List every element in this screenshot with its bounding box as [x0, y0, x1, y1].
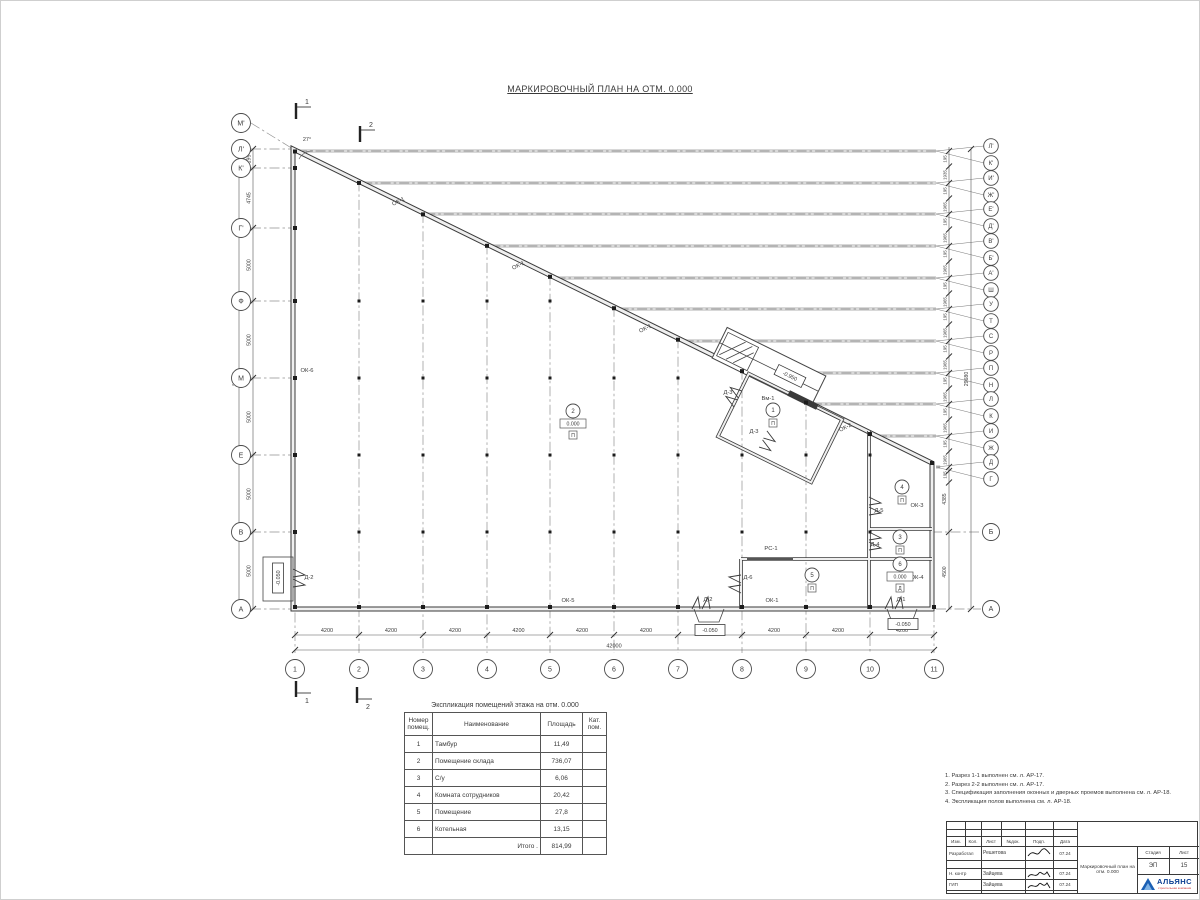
stamp-name: Решетова [981, 846, 1025, 860]
table-cell: Помещение склада [433, 753, 541, 770]
door-label: Д-3 [749, 429, 758, 435]
column [868, 605, 872, 609]
column [740, 605, 744, 609]
dimension-label: 1965 [943, 202, 948, 212]
stamp-header: Лист [981, 836, 1001, 846]
table-row: 2Помещение склада736,07 [405, 753, 607, 770]
table-cell: 27,8 [541, 804, 583, 821]
table-cell: 736,07 [541, 753, 583, 770]
axis-label: М' [237, 120, 244, 127]
stamp-role: Н. контр [947, 868, 981, 879]
table-row: 3С/у6,06 [405, 770, 607, 787]
column [612, 306, 616, 310]
stamp-name: Зайцева [981, 879, 1025, 890]
elevation-value: 0.000 [567, 422, 580, 428]
dimension-label: 42000 [606, 644, 621, 650]
axis-label: Г' [238, 225, 243, 232]
column [805, 454, 808, 457]
axis-label: Ф [238, 298, 243, 305]
column [293, 605, 297, 609]
column [421, 212, 425, 216]
axis-label: Е [239, 452, 244, 459]
axis-label: 3 [421, 666, 425, 673]
axis-label: У [989, 302, 993, 308]
col-category: Кат. пом. [583, 713, 607, 736]
axis-label: М [238, 375, 244, 382]
axis-line [251, 123, 293, 149]
dimension-label: 5000 [247, 565, 253, 577]
column [613, 531, 616, 534]
axis-label: Л' [988, 144, 993, 150]
axis-label: К [989, 414, 993, 420]
axis-label: Т [989, 319, 993, 325]
window-label: ОК-1 [638, 324, 652, 335]
table-cell: Комната сотрудников [433, 787, 541, 804]
column [930, 461, 934, 465]
column [422, 531, 425, 534]
col-number: Номер помещ. [405, 713, 433, 736]
interior-wall-core [741, 431, 932, 609]
dimension-label: 1965 [943, 297, 948, 307]
axis-label: К' [238, 165, 243, 172]
dimension-label: 4200 [385, 628, 397, 634]
column [805, 531, 808, 534]
axis-label: 4 [485, 666, 489, 673]
angle-label: 27° [303, 137, 311, 143]
table-header-row: Номер помещ. Наименование Площадь Кат. п… [405, 713, 607, 736]
floor-type: П [898, 548, 902, 554]
column [485, 605, 489, 609]
drawing-sheet: МАРКИРОВОЧНЫЙ ПЛАН НА ОТМ. 0.000 4200420… [0, 0, 1200, 900]
floor-type: П [771, 421, 775, 427]
col-name: Наименование [433, 713, 541, 736]
axis-label: Л [989, 397, 993, 403]
table-cell: 6,06 [541, 770, 583, 787]
column [677, 531, 680, 534]
stamp-doc-title: Маркировочный план на отм. 0.000 [1078, 847, 1137, 893]
dimension-label: 4200 [640, 628, 652, 634]
dimension-label: 1965 [943, 360, 948, 370]
window-label: Вм-1 [762, 396, 775, 402]
axis-label: 11 [930, 666, 937, 673]
company-logo: АЛЬЯНС строительная компания [1137, 874, 1199, 893]
column [676, 605, 680, 609]
door-label: Д-3 [723, 390, 732, 396]
column [358, 300, 361, 303]
table-cell: 814,99 [541, 838, 583, 855]
tambour-wall-core [718, 374, 842, 483]
section-number: 2 [369, 122, 373, 129]
signature [1025, 879, 1053, 890]
table-cell [583, 787, 607, 804]
note-line: 1. Разрез 1-1 выполнен см. л. АР-17. [945, 772, 1171, 781]
axis-label: 5 [548, 666, 552, 673]
dimension-label: 195 [943, 377, 948, 385]
column [486, 377, 489, 380]
section-number: 1 [305, 99, 309, 106]
dimension-label: 4200 [768, 628, 780, 634]
explication-table: Номер помещ. Наименование Площадь Кат. п… [404, 712, 607, 855]
column [485, 244, 489, 248]
floor-type: П [900, 498, 904, 504]
table-cell: Котельная [433, 821, 541, 838]
table-cell: 6 [405, 821, 433, 838]
col-area: Площадь [541, 713, 583, 736]
table-row: 5Помещение27,8 [405, 804, 607, 821]
table-row: 4Комната сотрудников20,42 [405, 787, 607, 804]
table-total-row: Итого .814,99 [405, 838, 607, 855]
axis-label: В [239, 529, 244, 536]
floor-type: П [571, 433, 575, 439]
axis-label: И' [988, 176, 993, 182]
dimension-label: 4500 [942, 566, 948, 577]
stamp-header: №док. [1001, 836, 1025, 846]
axis-label: 6 [612, 666, 616, 673]
dimension-label: 4200 [512, 628, 524, 634]
dimension-label: 5000 [247, 411, 253, 423]
column [677, 377, 680, 380]
title-block: Изм. Кол. Лист №док. Подп. Дата Разработ… [946, 821, 1198, 894]
table-cell: 3 [405, 770, 433, 787]
axis-label: Ж [988, 446, 994, 452]
sheet-value: 15 [1169, 858, 1199, 874]
column [422, 454, 425, 457]
axis-label: Ж' [988, 193, 995, 199]
column [677, 454, 680, 457]
axis-label: И [989, 429, 993, 435]
table-cell [583, 753, 607, 770]
note-line: 4. Экспликация полов выполнена см. л. АР… [945, 798, 1171, 807]
interior-wall [741, 431, 932, 609]
table-cell [583, 804, 607, 821]
stamp-date: 07.24 [1053, 846, 1077, 860]
stamp-header: Подп. [1025, 836, 1053, 846]
door-symbol [759, 431, 778, 452]
table-cell [583, 838, 607, 855]
axis-label: Б' [988, 256, 993, 262]
floor-type: П [810, 586, 814, 592]
axis-label: Л' [238, 146, 244, 153]
stamp-role: ГИП [947, 879, 981, 890]
signature [1025, 868, 1053, 879]
dimension-label: 195 [943, 187, 948, 195]
column [612, 605, 616, 609]
table-cell [583, 770, 607, 787]
table-cell: 13,15 [541, 821, 583, 838]
column [358, 454, 361, 457]
column [548, 275, 552, 279]
dimension-label: 5000 [247, 488, 253, 500]
column [422, 300, 425, 303]
elevation-value: -0.050 [895, 622, 910, 628]
section-number: 2 [366, 704, 370, 711]
dimension-label: 4200 [832, 628, 844, 634]
note-line: 2. Разрез 2-2 выполнен см. л. АР-17. [945, 781, 1171, 790]
section-number: 1 [305, 698, 309, 705]
column [357, 605, 361, 609]
table-cell [583, 821, 607, 838]
column [868, 432, 872, 436]
column [293, 299, 297, 303]
axis-label: Е' [988, 207, 993, 213]
elevation-value: -0.050 [276, 570, 282, 585]
axis-label: П [989, 366, 993, 372]
column [293, 166, 297, 170]
elevation-mark: -0.050 [273, 563, 284, 593]
elevation-value: 0.000 [894, 575, 907, 581]
dimension-label: 195 [943, 471, 948, 479]
dimension-label: 5000 [247, 334, 253, 346]
column [676, 338, 680, 342]
table-cell: 20,42 [541, 787, 583, 804]
dimension-label: 1965 [943, 328, 948, 338]
column [549, 377, 552, 380]
axis-label: Ш [988, 288, 994, 294]
column [741, 454, 744, 457]
dimension-label: 1965 [943, 392, 948, 402]
table-cell: 11,49 [541, 736, 583, 753]
column [293, 453, 297, 457]
window-label: ОК-1 [511, 261, 525, 272]
axis-label: 2 [357, 666, 361, 673]
dimension-label: 4385 [942, 493, 948, 504]
column [293, 226, 297, 230]
stage-label: Стадия [1137, 846, 1169, 858]
stamp-header: Кол. [965, 836, 981, 846]
dimension-label: 1965 [943, 233, 948, 243]
dimension-label: 4200 [449, 628, 461, 634]
column [869, 454, 872, 457]
table-cell: 5 [405, 804, 433, 821]
column [358, 531, 361, 534]
dimension-label: 195 [943, 440, 948, 448]
door-label: Д-2 [304, 575, 313, 581]
stage-value: ЭП [1137, 858, 1169, 874]
dimension-label: 5000 [247, 259, 253, 271]
column [740, 369, 744, 373]
note-line: 3. Спецификация заполнения оконных и две… [945, 789, 1171, 798]
axis-label: А [239, 606, 244, 613]
window-label: ОК-5 [561, 598, 574, 604]
explication-title: Экспликация помещений этажа на отм. 0.00… [404, 702, 606, 709]
table-cell: Помещение [433, 804, 541, 821]
dimension-label: 1965 [943, 423, 948, 433]
dimension-label: 4200 [321, 628, 333, 634]
stamp-header: Дата [1053, 836, 1077, 846]
dimension-label: 1965 [943, 265, 948, 275]
column [741, 531, 744, 534]
interior-walls [741, 431, 932, 609]
table-cell [583, 736, 607, 753]
dimension-label: 195 [943, 313, 948, 321]
notes-block: 1. Разрез 1-1 выполнен см. л. АР-17. 2. … [945, 772, 1171, 806]
column [549, 531, 552, 534]
column [358, 377, 361, 380]
column [422, 377, 425, 380]
axis-label: 1 [293, 666, 297, 673]
table-cell: 1 [405, 736, 433, 753]
dimension-label: 29680 [964, 372, 970, 387]
stamp-header: Изм. [947, 836, 965, 846]
window-label: ОК-1 [765, 598, 778, 604]
table-cell: Тамбур [433, 736, 541, 753]
column [804, 605, 808, 609]
column [293, 149, 297, 153]
column [293, 530, 297, 534]
axis-label: Н [989, 383, 993, 389]
tambour [718, 374, 842, 483]
sheet-label: Лист [1169, 846, 1199, 858]
stamp-role: Разработал [947, 846, 981, 860]
axis-label: А' [988, 271, 993, 277]
grid-and-dimensions: 4200420042004200420042004200420042004200… [233, 123, 985, 653]
axis-label: С [989, 334, 994, 340]
logo-text: АЛЬЯНС [1157, 878, 1192, 886]
window-label: ОК-3 [910, 503, 923, 509]
dimension-label: 4200 [576, 628, 588, 634]
column [932, 605, 936, 609]
table-cell: С/у [433, 770, 541, 787]
elevation-value: -0.050 [702, 628, 717, 634]
signature [1025, 846, 1053, 860]
dimension-label: 1935 [943, 170, 948, 180]
axis-label: Д [989, 460, 993, 466]
stamp-name: Зайцева [981, 868, 1025, 879]
axis-leader [936, 146, 984, 151]
elevation-mark: -0.050 [888, 619, 918, 630]
table-row: 6Котельная13,15 [405, 821, 607, 838]
table-cell [405, 838, 433, 855]
column [613, 454, 616, 457]
column [549, 300, 552, 303]
table-cell: 4 [405, 787, 433, 804]
dimension-label: 1965 [943, 455, 948, 465]
table-cell: Итого . [433, 838, 541, 855]
dimension-label: 195 [943, 155, 948, 163]
column [293, 376, 297, 380]
window-label: РС-1 [764, 546, 777, 552]
table-cell: 2 [405, 753, 433, 770]
axis-label: Б [989, 529, 994, 536]
column [869, 531, 872, 534]
dimension-label: 195 [943, 408, 948, 416]
stamp-date: 07.24 [1053, 879, 1077, 890]
column [548, 605, 552, 609]
logo-subtext: строительная компания [1157, 886, 1192, 890]
column [357, 181, 361, 185]
dimension-label: 4745 [247, 192, 253, 204]
dimension-label: 195 [943, 250, 948, 258]
axis-label: 9 [804, 666, 808, 673]
axis-label: К' [989, 161, 994, 167]
axis-label: А [989, 606, 994, 613]
axis-label: 7 [676, 666, 680, 673]
column [549, 454, 552, 457]
axis-label: Д' [988, 224, 993, 230]
column [804, 401, 808, 405]
axis-label: В' [988, 239, 993, 245]
explication-block: Экспликация помещений этажа на отм. 0.00… [404, 702, 606, 855]
table-row: 1Тамбур11,49 [405, 736, 607, 753]
stamp-date: 07.24 [1053, 868, 1077, 879]
door-label: Д-6 [743, 575, 752, 581]
elevation-mark: -0.050 [695, 625, 725, 636]
axis-label: 10 [866, 666, 874, 673]
porches [263, 557, 917, 622]
column [421, 605, 425, 609]
logo-triangle-icon [1140, 877, 1155, 891]
window-label: ОК-6 [300, 368, 313, 374]
axis-label: Р [989, 351, 993, 357]
dimension-label: 195 [943, 345, 948, 353]
column [486, 531, 489, 534]
column [486, 300, 489, 303]
dimension-label: 195 [943, 282, 948, 290]
dimension-label: 195 [943, 218, 948, 226]
column [486, 454, 489, 457]
column [613, 377, 616, 380]
axis-label: 8 [740, 666, 744, 673]
